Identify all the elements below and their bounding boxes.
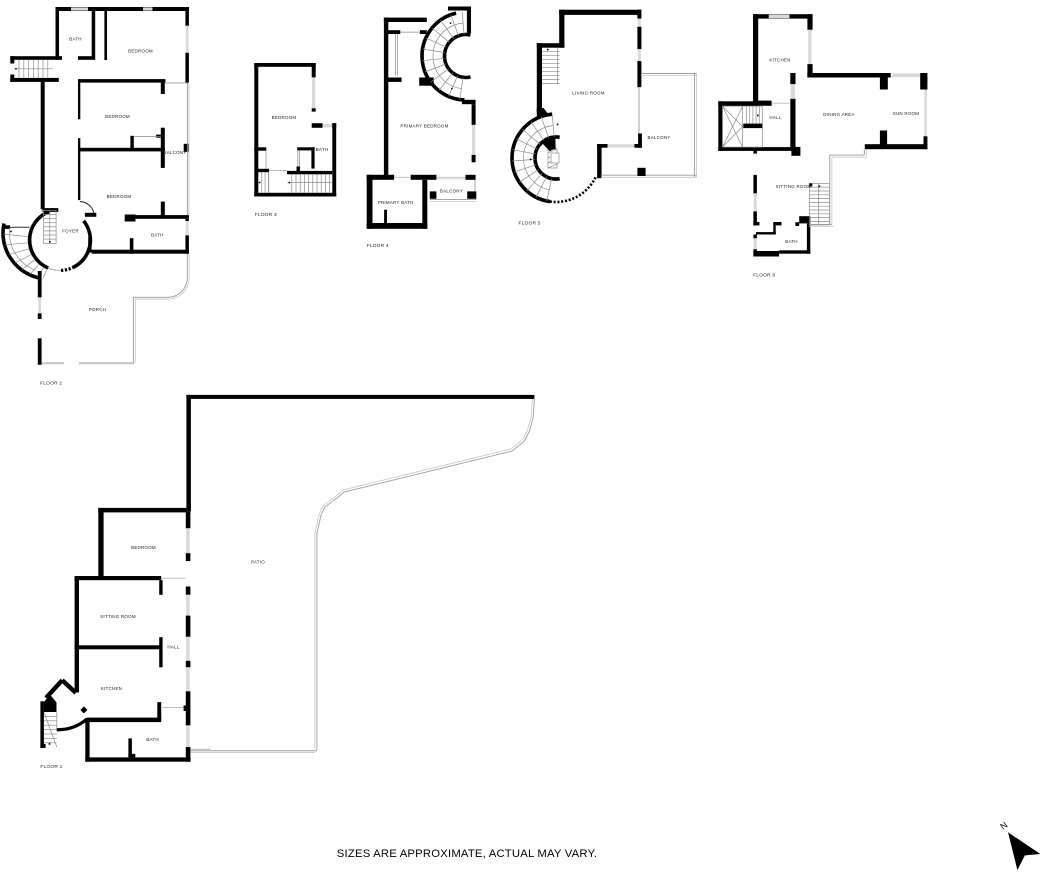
svg-text:FLOOR 3: FLOOR 3	[255, 212, 277, 218]
svg-text:BATH: BATH	[146, 737, 159, 742]
svg-text:FOYER: FOYER	[62, 229, 79, 234]
svg-text:FLOOR 6: FLOOR 6	[753, 273, 775, 279]
svg-text:DINING AREA: DINING AREA	[823, 112, 854, 117]
svg-text:SUN ROOM: SUN ROOM	[893, 111, 920, 116]
svg-text:SIZES ARE APPROXIMATE, ACTUAL: SIZES ARE APPROXIMATE, ACTUAL MAY VARY.	[337, 848, 597, 860]
svg-text:FLOOR 5: FLOOR 5	[519, 220, 541, 226]
svg-text:HALL: HALL	[167, 645, 179, 650]
svg-text:LIVING ROOM: LIVING ROOM	[572, 90, 604, 95]
svg-text:BEDROOM: BEDROOM	[128, 49, 153, 54]
svg-text:BATH: BATH	[785, 239, 798, 244]
svg-text:PRIMARY BATH: PRIMARY BATH	[378, 200, 414, 205]
svg-text:FLOOR 1: FLOOR 1	[40, 764, 62, 770]
svg-text:PATIO: PATIO	[251, 560, 265, 565]
svg-text:BEDROOM: BEDROOM	[107, 194, 132, 199]
svg-text:FLOOR 4: FLOOR 4	[367, 243, 389, 249]
svg-text:FLOOR 2: FLOOR 2	[40, 380, 62, 386]
svg-text:PORCH: PORCH	[89, 307, 106, 312]
svg-text:HALL: HALL	[769, 115, 781, 120]
svg-text:PRIMARY BEDROOM: PRIMARY BEDROOM	[400, 123, 448, 128]
svg-text:BEDROOM: BEDROOM	[272, 115, 297, 120]
svg-text:BATH: BATH	[69, 36, 82, 41]
svg-text:KITCHEN: KITCHEN	[101, 686, 122, 691]
svg-text:BATH: BATH	[316, 147, 329, 152]
svg-text:KITCHEN: KITCHEN	[769, 58, 790, 63]
svg-text:BALCONY: BALCONY	[647, 135, 670, 140]
svg-text:BATH: BATH	[151, 232, 164, 237]
svg-text:SITTING ROOM: SITTING ROOM	[100, 614, 136, 619]
svg-text:SITTING ROOM: SITTING ROOM	[776, 184, 812, 189]
svg-text:BEDROOM: BEDROOM	[131, 545, 156, 550]
svg-text:BALCONY: BALCONY	[163, 150, 186, 155]
svg-text:BEDROOM: BEDROOM	[105, 114, 130, 119]
svg-text:BALCONY: BALCONY	[440, 189, 463, 194]
